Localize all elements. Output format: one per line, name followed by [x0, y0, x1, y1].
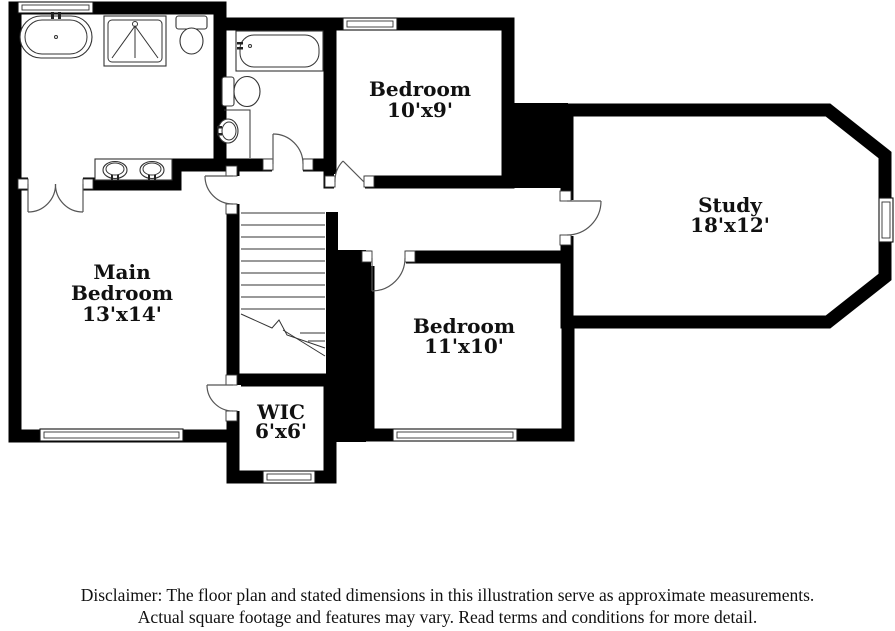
- window-bedroom-top: [343, 18, 397, 30]
- room-dimensions: 6'x6': [255, 419, 307, 443]
- toilet2-icon: [222, 77, 260, 107]
- disclaimer-line-1: Disclaimer: The floor plan and stated di…: [0, 585, 895, 607]
- room-dimensions: 11'x10': [424, 334, 504, 358]
- room-dimensions: 10'x9': [387, 98, 453, 122]
- window-main-bedroom: [40, 429, 183, 441]
- window-main-bathroom: [18, 2, 93, 13]
- window-study: [879, 198, 893, 242]
- room-dimensions: 13'x14': [82, 302, 162, 326]
- window-bedroom-middle: [393, 429, 517, 441]
- bathtub-icon: [20, 12, 92, 58]
- disclaimer-line-2: Actual square footage and features may v…: [0, 607, 895, 629]
- staircase: [241, 213, 325, 356]
- floor-plan: Main Bedroom 13'x14' Bedroom 10'x9' Bedr…: [0, 0, 895, 631]
- disclaimer: Disclaimer: The floor plan and stated di…: [0, 585, 895, 628]
- bathtub2-icon: [236, 31, 323, 71]
- floor-plan-page: Main Bedroom 13'x14' Bedroom 10'x9' Bedr…: [0, 0, 895, 631]
- shower-icon: [104, 16, 166, 66]
- label-study: Study 18'x12': [690, 193, 770, 237]
- label-wic: WIC 6'x6': [255, 400, 307, 443]
- window-wic: [263, 471, 315, 483]
- wall-stairs-right-column: [326, 250, 366, 442]
- label-bedroom-middle: Bedroom 11'x10': [413, 314, 515, 358]
- wall-mass-study-corner: [503, 103, 568, 188]
- room-dimensions: 18'x12': [690, 213, 770, 237]
- vanity-double-sink-icon: [95, 159, 172, 180]
